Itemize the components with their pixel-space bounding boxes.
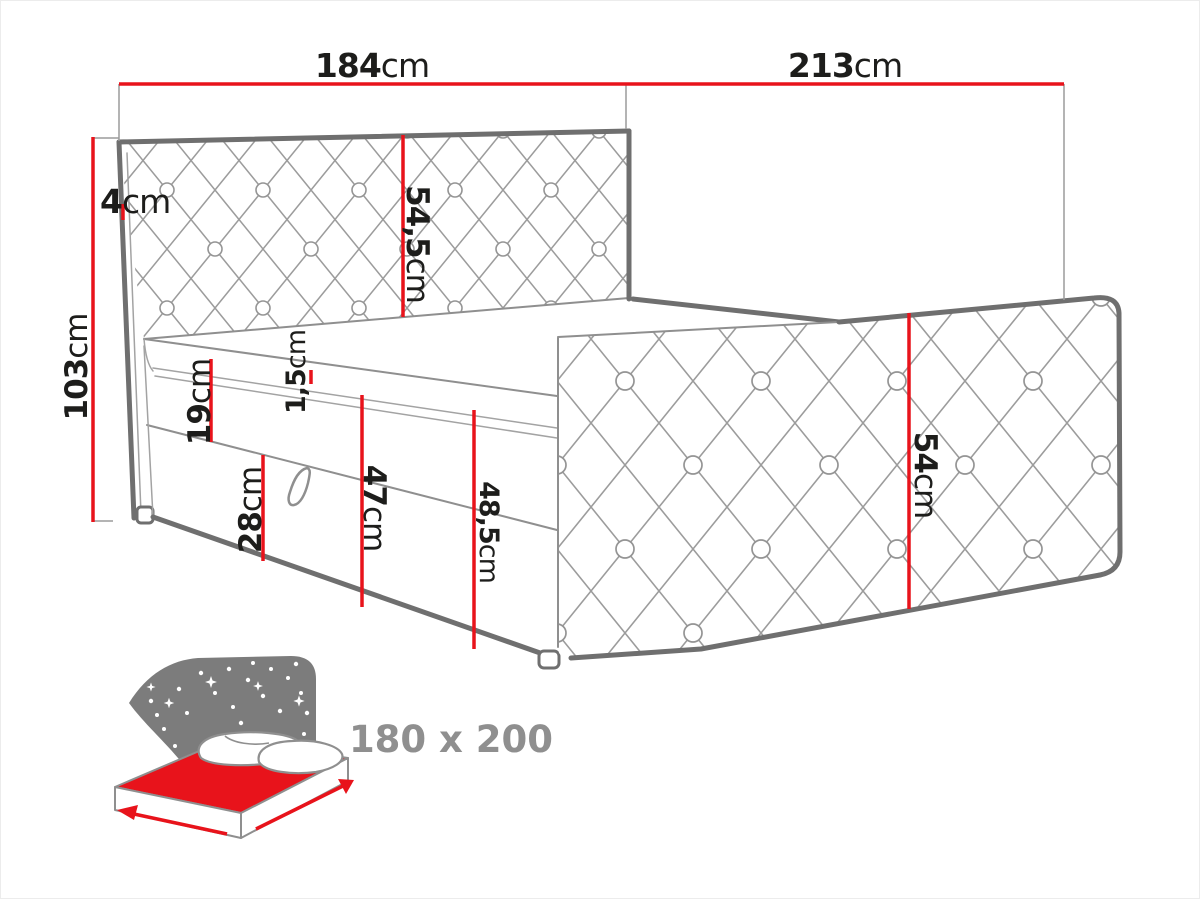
dim-label-footboard-panel: 54cm [907,432,943,518]
dim-label-side-height: 48,5cm [473,481,504,583]
dim-label-headboard-thickness: 4cm [100,182,170,221]
drawer-handle-icon [289,468,310,505]
dim-label-drawer: 28cm [233,467,269,553]
mattress-size-label: 180 x 200 [349,718,553,761]
bed-foot-front [539,651,559,668]
dim-label-headboard-width: 184cm [315,46,429,85]
dim-label-welt: 1,5cm [281,330,312,414]
footboard-panel [558,298,1120,659]
diagram-canvas: 184cm 213cm 4cm 103cm 54,5cm 19cm 1,5cm … [1,1,1199,898]
bed-size-icon: 180 x 200 [115,656,553,838]
dim-label-bed-length: 213cm [788,46,902,85]
dim-label-headboard-panel: 54,5cm [399,185,435,303]
bed-drawing [119,131,1120,668]
dim-label-total-height: 103cm [59,314,95,421]
dim-label-base-height: 47cm [356,465,392,551]
bed-dimension-diagram: 184cm 213cm 4cm 103cm 54,5cm 19cm 1,5cm … [0,0,1200,899]
dim-label-upper-box: 19cm [182,359,218,445]
bed-foot-left [137,507,153,523]
